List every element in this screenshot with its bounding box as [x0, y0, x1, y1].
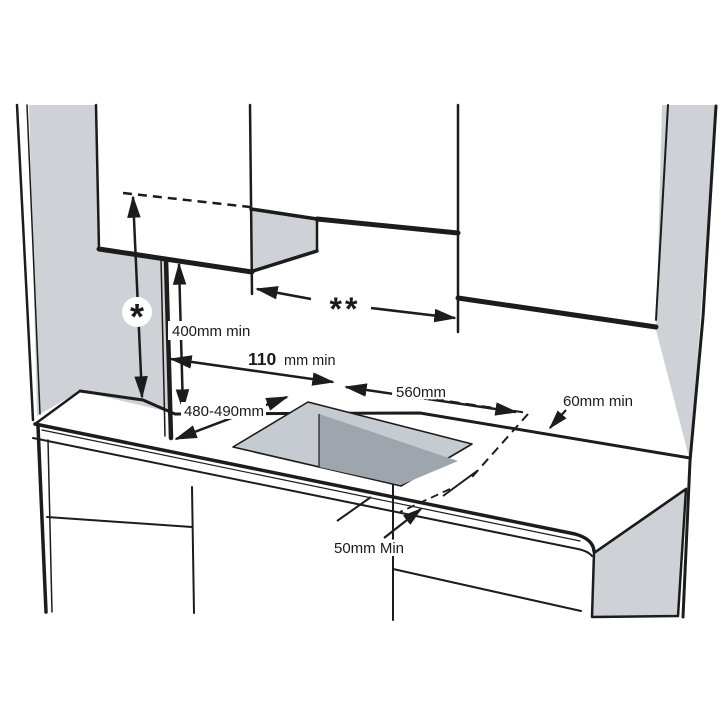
recess-shelf-edge [317, 219, 458, 233]
base-drawer-line-mid [393, 569, 581, 611]
double-asterisk-icon: ** [330, 291, 361, 327]
cutout-depth-label: 480-490mm [184, 403, 264, 420]
asterisk-icon: * [130, 296, 144, 337]
base-left-edge [38, 426, 46, 612]
side-clearance-value-label: 110 [248, 349, 276, 369]
upper-cabinet-right-bottom [458, 298, 656, 327]
side-clearance-unit-label: mm min [284, 353, 336, 369]
base-divider [192, 487, 194, 613]
base-drawer-line-left [47, 517, 192, 527]
cabinet-gap-arrow-left [257, 289, 311, 299]
hood-level-hidden-line [123, 193, 250, 207]
installation-diagram: 400mm min 110 mm min 560mm 480-490mm 60m… [0, 0, 720, 720]
cutout-width-label: 560mm [396, 384, 446, 401]
rear-clearance-pointer [550, 410, 566, 428]
left-wall-face [29, 105, 169, 416]
base-left-edge-inner [48, 440, 52, 612]
rear-clearance-label: 60mm min [563, 393, 633, 410]
front-clearance-label: 50mm Min [334, 540, 404, 557]
upper-cabinet-left-right-edge [250, 105, 252, 294]
cabinet-gap-arrow-right [371, 308, 455, 318]
worktop-to-cabinet-label: 400mm min [172, 323, 250, 340]
kitchen-line-drawing: 400mm min 110 mm min 560mm 480-490mm 60m… [0, 0, 720, 720]
